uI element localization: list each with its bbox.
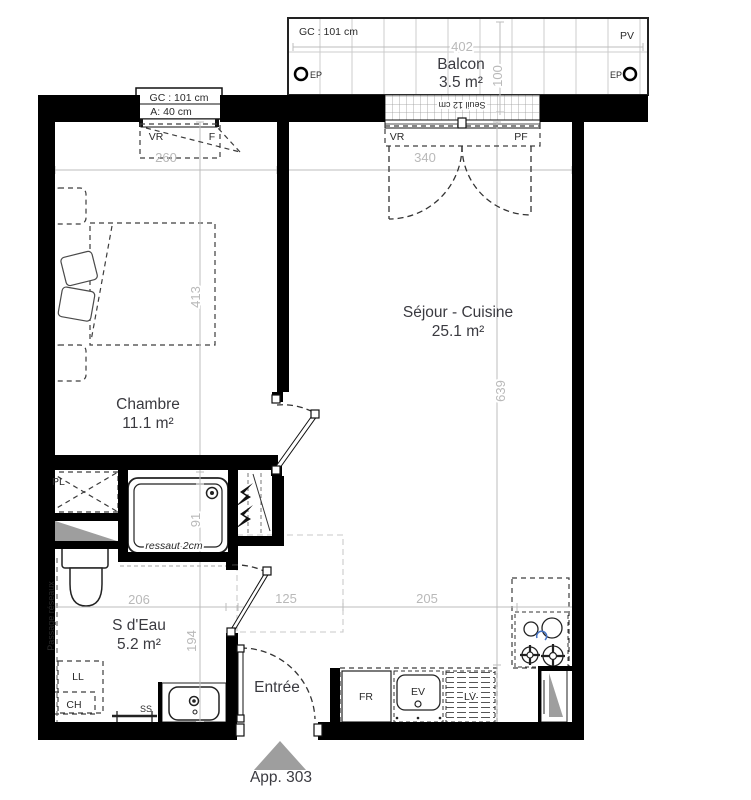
floor-plan-page: GC : 101 cm PV EP EP Balcon 3.5 m² 402 1… [0, 0, 751, 800]
sliding-panel-marker [46, 518, 117, 541]
dim-balcony-depth: 100 [490, 65, 505, 87]
bed [90, 223, 215, 345]
pillow [58, 286, 96, 321]
passage-reseaux-label: Passage réseaux [46, 581, 56, 651]
balcony-gc-label: GC : 101 cm [299, 26, 358, 38]
ev-label: EV [411, 686, 425, 698]
dim-chambre-width: 260 [155, 150, 177, 165]
baydoor-pf-label: PF [514, 131, 527, 143]
electrical-panel [235, 470, 272, 536]
apartment-number: App. 303 [250, 769, 312, 786]
nightstand [53, 345, 86, 381]
sejour-name: Séjour - Cuisine [403, 304, 513, 321]
chambre-area: 11.1 m² [122, 415, 173, 432]
sdeau-area: 5.2 m² [117, 636, 161, 653]
baydoor-vr-label: VR [390, 131, 405, 143]
ressaut-label: ressaut 2cm [145, 540, 202, 552]
window-a-label: A: 40 cm [150, 106, 192, 118]
gas-burner-icon [541, 644, 565, 668]
fr-label: FR [359, 691, 373, 703]
ll-label: LL [72, 671, 84, 683]
sdeau-name: S d'Eau [112, 617, 166, 634]
dim-sejour-width: 340 [414, 150, 436, 165]
toilet [62, 546, 108, 606]
rainwater-pipe-icon [295, 68, 307, 80]
balcony-area: 3.5 m² [439, 74, 483, 91]
dim-sdeau-width: 206 [128, 592, 150, 607]
duct-niche [541, 670, 567, 722]
entrance-marker [254, 741, 306, 770]
gas-burner-icon [520, 645, 540, 665]
entree-name: Entrée [254, 679, 300, 696]
dim-shower-depth: 91 [188, 513, 203, 527]
window-f-label: F [209, 131, 215, 143]
sejour-area: 25.1 m² [432, 323, 485, 340]
bedroom-door [272, 395, 319, 474]
kitchen-counter-side [512, 578, 569, 668]
window-vr-label: VR [149, 131, 164, 143]
nightstand [53, 188, 86, 224]
ch-label: CH [66, 699, 81, 711]
pl-label: PL [52, 476, 65, 488]
washbasin [162, 683, 226, 722]
floor-plan-drawing: GC : 101 cm PV EP EP Balcon 3.5 m² 402 1… [0, 0, 751, 800]
balcony-name: Balcon [437, 56, 484, 73]
lv-label: LV [464, 691, 476, 703]
dim-balcony-width: 402 [451, 39, 473, 54]
pillow [60, 251, 98, 287]
ep-label: EP [310, 70, 322, 80]
chambre-name: Chambre [116, 396, 180, 413]
bathroom-door [227, 565, 271, 636]
dim-chambre-depth: 413 [188, 286, 203, 308]
seuil-label: Seuil 12 cm [438, 100, 485, 110]
dim-sejour-depth: 639 [493, 380, 508, 402]
ss-label: SS [140, 704, 152, 714]
cooktop [520, 618, 565, 668]
ep-label: EP [610, 70, 622, 80]
dim-cuisine-width: 205 [416, 591, 438, 606]
pv-label: PV [620, 30, 634, 42]
rainwater-pipe-icon [624, 68, 636, 80]
dim-sdeau-depth: 194 [184, 630, 199, 652]
window-gc-label: GC : 101 cm [150, 92, 209, 104]
circulation-zone [237, 535, 343, 632]
dim-entree-width: 125 [275, 591, 297, 606]
